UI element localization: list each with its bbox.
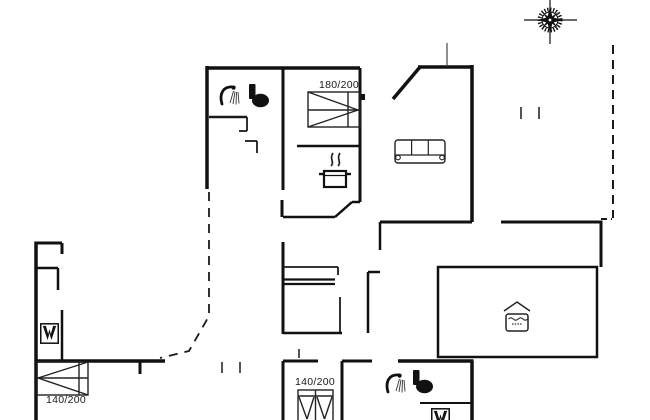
wardrobe-appliance-icon: [41, 324, 58, 343]
cabinet-icon: [283, 280, 335, 285]
wardrobe-appliance-icon: [432, 409, 449, 420]
toilet-icon: [249, 84, 269, 107]
compass-rose-icon: [524, 0, 577, 44]
sofa-icon: [395, 140, 445, 163]
bed-size-label: 180/200: [319, 79, 359, 91]
double-bed-icon: [37, 362, 88, 395]
bed-size-label: 140/200: [46, 394, 86, 406]
bed-size-label: 140/200: [295, 376, 335, 388]
walls: [36, 43, 601, 420]
pool-icon: [504, 302, 530, 331]
floor-plan: 180/200 140/200 140/200: [0, 0, 650, 420]
shower-icon: [221, 86, 239, 105]
toilet-icon: [413, 370, 433, 393]
double-bed-icon: [298, 390, 333, 420]
floor-plan-drawing: [0, 0, 650, 420]
roof-overhang-dashed-line: [160, 192, 209, 358]
shower-icon: [387, 374, 405, 393]
double-bed-icon: [308, 92, 360, 127]
terrace-dashed-boundary: [521, 45, 613, 219]
pool-room-outline: [438, 267, 597, 357]
cooking-pot-icon: [319, 153, 351, 187]
